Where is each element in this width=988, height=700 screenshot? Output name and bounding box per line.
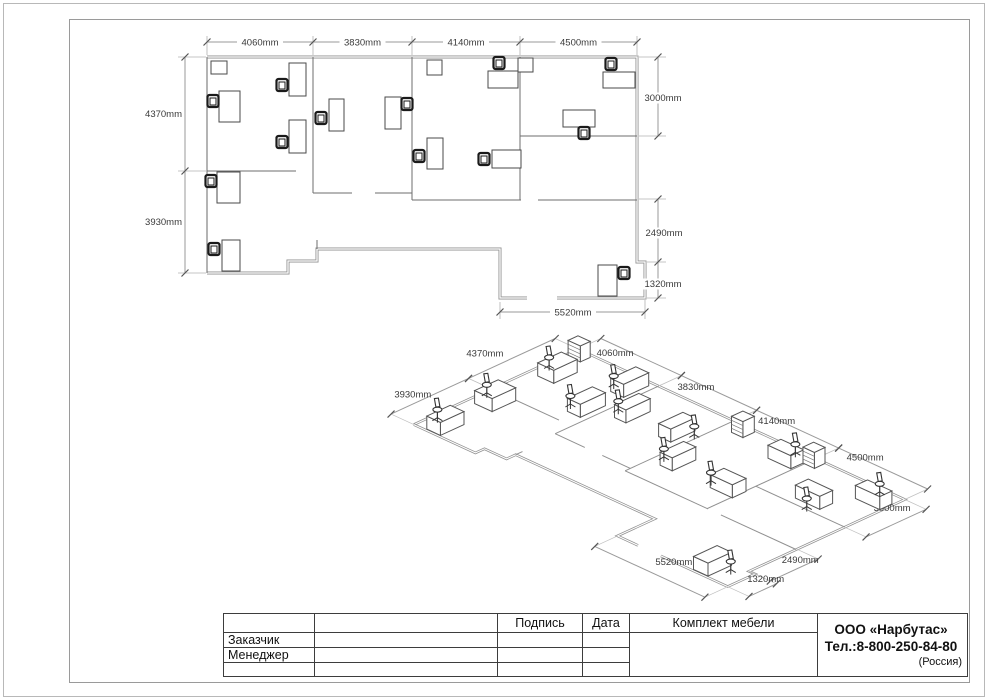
office-chair-icon	[316, 112, 327, 124]
iso-desk	[706, 461, 746, 498]
iso-interior-wall	[555, 434, 585, 448]
iso-ext-line	[705, 587, 728, 598]
desk	[289, 63, 306, 96]
office-chair-icon	[414, 150, 425, 162]
office-chair-icon	[494, 57, 505, 69]
empty-row-date-cell	[583, 663, 630, 676]
office-chair-icon	[606, 58, 617, 70]
iso-cabinet	[732, 411, 755, 438]
iso-desk	[694, 546, 736, 577]
company-country: (Россия)	[820, 655, 962, 669]
office-chair-icon	[277, 136, 288, 148]
cabinet	[211, 61, 227, 74]
desk	[603, 72, 635, 88]
dim-tick	[597, 335, 604, 342]
dim-tick	[863, 533, 870, 540]
dimension-label: 1320mm	[645, 279, 682, 290]
manager-value	[315, 648, 498, 663]
dim-tick	[746, 593, 753, 600]
iso-desk	[613, 390, 650, 423]
dimension-label: 2490mm	[782, 555, 819, 566]
line	[731, 570, 736, 573]
line	[807, 507, 812, 510]
title-block: Подпись Дата Комплект мебели ООО «Нарбут…	[223, 613, 968, 677]
plan-2d-view: 4060mm3830mm4140mm4500mm4370mm3930mm3000…	[145, 36, 687, 319]
company-info: ООО «Нарбутас» Тел.:8-800-250-84-80 (Рос…	[818, 614, 967, 676]
iso-desk	[475, 373, 516, 411]
iso-desk	[659, 437, 696, 470]
empty-row-value	[315, 663, 498, 676]
manager-date-cell	[583, 648, 630, 663]
exterior-wall-core	[207, 249, 527, 298]
line	[694, 434, 699, 437]
dim-tick	[923, 506, 930, 513]
plan-isometric-view: 4370mm3930mm4060mm3830mm4140mm4500mm3000…	[388, 335, 932, 601]
customer-signature-cell	[498, 633, 583, 648]
customer-value	[315, 633, 498, 648]
dimension-label: 1320mm	[747, 574, 784, 585]
date-header: Дата	[583, 614, 630, 633]
office-chair-icon	[619, 267, 630, 279]
office-chair-icon	[209, 243, 220, 255]
dimension-label: 3000mm	[645, 93, 682, 104]
iso-ext-line	[728, 587, 749, 597]
iso-interior-wall	[721, 515, 796, 550]
furniture-set-header: Комплект мебели	[630, 614, 818, 633]
dim-tick	[835, 445, 842, 452]
dimension-label: 4370mm	[145, 109, 182, 120]
dimension-label: 4500mm	[560, 38, 597, 49]
exterior-wall-core	[207, 57, 645, 298]
iso-desk	[565, 385, 605, 418]
office-chair-icon	[579, 127, 590, 139]
title-block-cell	[224, 614, 315, 633]
iso-exterior-wall-core	[414, 425, 655, 546]
desk	[329, 99, 344, 131]
desk	[385, 97, 401, 129]
cabinet	[427, 60, 442, 75]
empty-row-label	[224, 663, 315, 676]
line	[689, 434, 694, 437]
dim-tick	[465, 375, 472, 382]
customer-label: Заказчик	[224, 633, 315, 648]
dim-tick	[924, 486, 931, 493]
company-name: ООО «Нарбутас»	[820, 621, 962, 638]
dimension-label: 4140mm	[758, 416, 795, 427]
iso-ext-line	[905, 489, 928, 500]
iso-dim-line	[595, 546, 705, 597]
dimension-label: 4370mm	[466, 348, 503, 359]
iso-desk	[609, 365, 649, 398]
iso-ext-line	[845, 527, 866, 537]
iso-interior-wall	[516, 452, 523, 455]
desk	[488, 71, 518, 88]
dimension-label: 3930mm	[145, 217, 182, 228]
signature-header: Подпись	[498, 614, 583, 633]
desk	[289, 120, 306, 153]
desk	[492, 150, 521, 168]
dimension-label: 3830mm	[677, 382, 714, 393]
desk	[563, 110, 595, 127]
office-chair-icon	[277, 79, 288, 91]
empty-row-signature-cell	[498, 663, 583, 676]
dim-tick	[591, 543, 598, 550]
dimension-label: 3930mm	[394, 389, 431, 400]
office-chair-icon	[402, 98, 413, 110]
dim-tick	[701, 594, 708, 601]
dimension-label: 5520mm	[655, 557, 692, 568]
furniture-set-cell	[630, 633, 818, 676]
dimension-label: 5520mm	[555, 308, 592, 319]
dim-tick	[753, 407, 760, 414]
office-chair-icon	[208, 95, 219, 107]
dimension-label: 4060mm	[597, 348, 634, 359]
iso-interior-wall	[602, 455, 630, 468]
cabinet	[518, 58, 533, 72]
desk	[217, 172, 240, 203]
dim-tick	[552, 335, 559, 342]
iso-dim-line	[749, 584, 776, 597]
manager-label: Менеджер	[224, 648, 315, 663]
iso-exterior-wall	[414, 425, 655, 546]
dim-tick	[678, 372, 685, 379]
desk	[222, 240, 240, 271]
furniture-layout-drawing: 4060mm3830mm4140mm4500mm4370mm3930mm3000…	[0, 0, 988, 700]
iso-ext-line	[391, 414, 414, 425]
dimension-label: 4140mm	[448, 38, 485, 49]
line	[726, 570, 731, 573]
dimension-label: 2490mm	[646, 228, 683, 239]
office-chair-icon	[206, 175, 217, 187]
desk	[598, 265, 617, 296]
iso-ext-line	[595, 536, 618, 547]
title-block-cell	[315, 614, 498, 633]
company-phone: Тел.:8-800-250-84-80	[820, 638, 962, 655]
iso-interior-wall	[625, 471, 708, 509]
iso-cabinet	[803, 442, 825, 468]
desk	[219, 91, 240, 122]
dimension-label: 3830mm	[344, 38, 381, 49]
customer-date-cell	[583, 633, 630, 648]
manager-signature-cell	[498, 648, 583, 663]
iso-dimensions: 4370mm3930mm4060mm3830mm4140mm4500mm3000…	[388, 335, 932, 601]
exterior-wall	[207, 57, 645, 298]
office-chair-icon	[479, 153, 490, 165]
drawing-sheet: 4060mm3830mm4140mm4500mm4370mm3930mm3000…	[0, 0, 988, 700]
dimension-label: 4500mm	[847, 453, 884, 464]
desk	[427, 138, 443, 169]
dim-tick	[388, 411, 395, 418]
dimension-label: 4060mm	[242, 38, 279, 49]
